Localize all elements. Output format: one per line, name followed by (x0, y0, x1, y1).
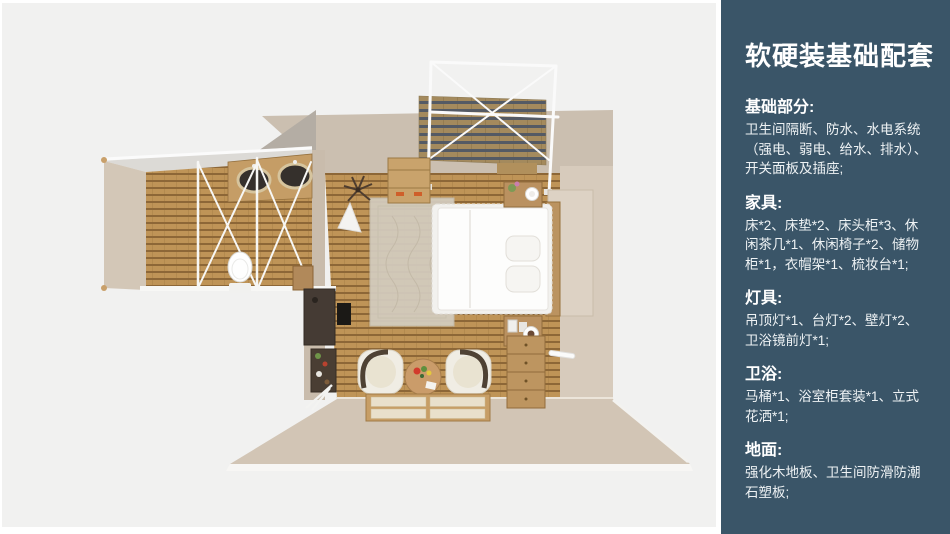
nightstand-top (504, 182, 542, 208)
pillow (506, 266, 540, 292)
panel-title: 软硬装基础配套 (745, 40, 930, 72)
floor-mats (366, 394, 490, 421)
plant (508, 184, 516, 192)
section-heading: 家具: (745, 194, 930, 214)
washbasin (279, 164, 311, 188)
section-body: 床*2、床垫*2、床头柜*3、休闲茶几*1、休闲椅子*2、储物柜*1，衣帽架*1… (745, 216, 930, 275)
spec-section-basic: 基础部分: 卫生间隔断、防水、水电系统（强电、弱电、给水、排水）、开关面板及插座… (745, 98, 930, 179)
section-heading: 卫浴: (745, 365, 930, 385)
lounge-chair-right (446, 350, 491, 394)
section-body: 卫生间隔断、防水、水电系统（强电、弱电、给水、排水）、开关面板及插座; (745, 120, 930, 179)
bath-shelf (293, 266, 313, 290)
photo-frame (508, 320, 517, 332)
spec-section-furniture: 家具: 床*2、床垫*2、床头柜*3、休闲茶几*1、休闲椅子*2、储物柜*1，衣… (745, 194, 930, 275)
lounge-chair-left (358, 350, 403, 394)
bed (432, 202, 560, 316)
section-body: 吊顶灯*1、台灯*2、壁灯*2、卫浴镜前灯*1; (745, 311, 930, 350)
floorplan-area (2, 3, 716, 527)
bathroom (101, 146, 336, 293)
storage-cabinet (388, 158, 430, 203)
faucet (293, 160, 297, 164)
section-heading: 地面: (745, 441, 930, 461)
slide: 软硬装基础配套 基础部分: 卫生间隔断、防水、水电系统（强电、弱电、给水、排水）… (0, 0, 950, 534)
floorplan-render (2, 3, 716, 527)
pillow (506, 236, 540, 261)
spec-section-floor: 地面: 强化木地板、卫生间防滑防潮石塑板; (745, 441, 930, 502)
coffee-table (405, 359, 441, 395)
section-heading: 灯具: (745, 289, 930, 309)
section-heading: 基础部分: (745, 98, 930, 118)
section-body: 强化木地板、卫生间防滑防潮石塑板; (745, 463, 930, 502)
spec-panel: 软硬装基础配套 基础部分: 卫生间隔断、防水、水电系统（强电、弱电、给水、排水）… (721, 0, 950, 534)
toilet (228, 252, 252, 282)
section-body: 马桶*1、浴室柜套装*1、立式花洒*1; (745, 387, 930, 426)
spec-section-bathroom: 卫浴: 马桶*1、浴室柜套装*1、立式花洒*1; (745, 365, 930, 426)
spec-section-lighting: 灯具: 吊顶灯*1、台灯*2、壁灯*2、卫浴镜前灯*1; (745, 289, 930, 350)
spec-sections: 基础部分: 卫生间隔断、防水、水电系统（强电、弱电、给水、排水）、开关面板及插座… (745, 98, 930, 502)
dresser (507, 336, 545, 408)
